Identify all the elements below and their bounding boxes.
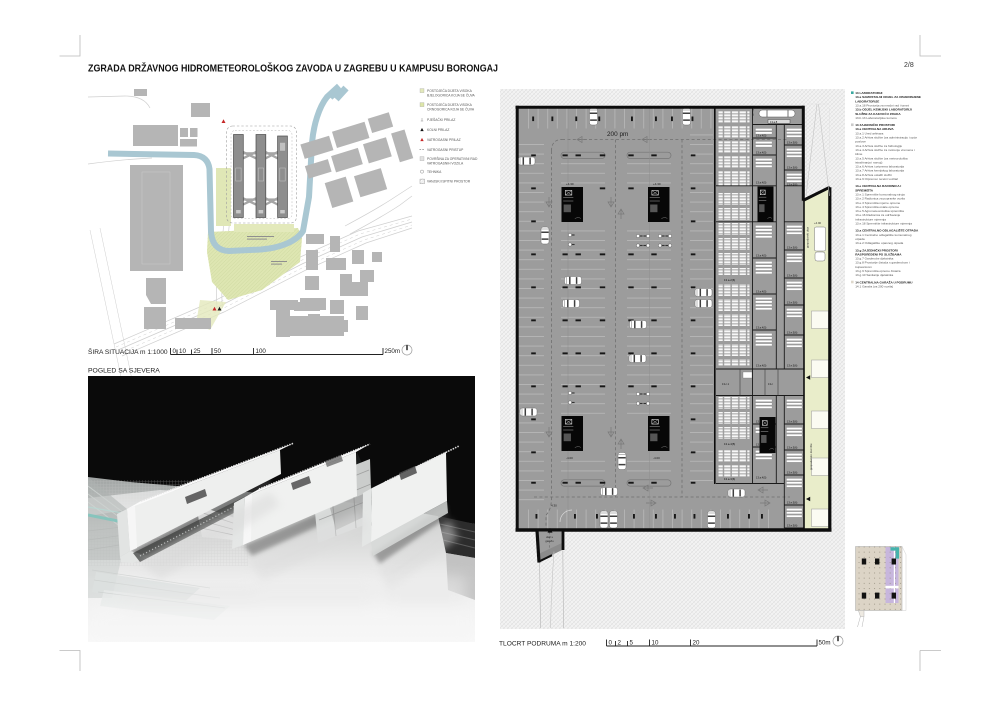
svg-text:13.a.4(5): 13.a.4(5)	[756, 364, 767, 368]
svg-text:14.1 Garaža (za 200 vozila): 14.1 Garaža (za 200 vozila)	[855, 284, 893, 288]
svg-text:VATROGASNI PRILAZ: VATROGASNI PRILAZ	[427, 138, 461, 142]
svg-text:13.e.5(6): 13.e.5(6)	[787, 364, 798, 368]
svg-text:13.a.4(5): 13.a.4(5)	[756, 476, 767, 480]
svg-text:13.g.10 Sanitarije djelatnika: 13.g.10 Sanitarije djelatnika	[855, 273, 893, 277]
svg-text:+4.30: +4.30	[653, 182, 661, 186]
svg-text:VATROGASNIH VOZILA: VATROGASNIH VOZILA	[427, 161, 464, 165]
svg-text:13.a.4(5): 13.a.4(5)	[756, 290, 767, 294]
svg-text:100: 100	[256, 348, 267, 355]
svg-text:POSTOJEĆA DIJETA VISOKA: POSTOJEĆA DIJETA VISOKA	[427, 88, 473, 93]
svg-text:13.e.5(6): 13.e.5(6)	[787, 420, 798, 424]
svg-text:10: 10	[652, 640, 659, 647]
svg-text:13.e.18 Spremište infrastruktu: 13.e.18 Spremište infrastrukture mjerenj…	[855, 222, 912, 226]
svg-text:13.e.5(6): 13.e.5(6)	[787, 166, 798, 170]
svg-text:13.e.5(6): 13.e.5(6)	[787, 301, 798, 305]
svg-text:gospodarsko dvorište: gospodarsko dvorište	[809, 443, 813, 470]
svg-text:13.a.9 Otprema i teretni vozil: 13.a.9 Otprema i teretni vozilari	[855, 177, 898, 181]
svg-text:13.c: 13.c	[768, 382, 774, 386]
svg-text:13.e.5(6): 13.e.5(6)	[787, 524, 798, 528]
svg-text:13.a.4(5): 13.a.4(5)	[724, 442, 735, 446]
svg-text:+4.90: +4.90	[814, 221, 822, 225]
svg-text:13.e.5(6): 13.e.5(6)	[787, 446, 798, 450]
svg-text:20: 20	[693, 640, 700, 647]
svg-text:250m: 250m	[385, 348, 400, 355]
svg-text:13.c.1: 13.c.1	[722, 382, 730, 386]
svg-text:10: 10	[179, 348, 186, 355]
svg-text:POVRŠINA ZA OPERATIVNI RAD: POVRŠINA ZA OPERATIVNI RAD	[427, 156, 478, 161]
svg-text:TEHNIKA: TEHNIKA	[427, 170, 442, 174]
svg-text:PJEŠAČKI PRILAZ: PJEŠAČKI PRILAZ	[427, 117, 455, 122]
svg-text:4.30: 4.30	[551, 504, 557, 508]
svg-text:13.a.4(5): 13.a.4(5)	[756, 134, 767, 138]
svg-text:5: 5	[630, 640, 634, 647]
svg-text:13.e.5(6): 13.e.5(6)	[787, 274, 798, 278]
svg-text:25: 25	[194, 348, 201, 355]
svg-text:13.e.5(6): 13.e.5(6)	[787, 501, 798, 505]
svg-text:ZGRADA DRŽAVNOG HIDROMETEOROLO: ZGRADA DRŽAVNOG HIDROMETEOROLOŠKOG ZAVOD…	[88, 62, 498, 75]
svg-text:-4.00: -4.00	[653, 456, 660, 460]
svg-text:13.b.13 Laboratorijske komore: 13.b.13 Laboratorijske komore	[855, 116, 897, 120]
svg-text:13.a.4(5): 13.a.4(5)	[756, 181, 767, 185]
svg-text:POGLED SA SJEVERA: POGLED SA SJEVERA	[88, 368, 160, 375]
svg-text:+4.30: +4.30	[566, 182, 574, 186]
svg-text:13.a.4(5): 13.a.4(5)	[756, 326, 767, 330]
svg-text:13.a.3(6): 13.a.3(6)	[724, 477, 735, 481]
svg-text:50m: 50m	[819, 640, 831, 647]
svg-text:-4.00: -4.00	[566, 456, 573, 460]
svg-text:0: 0	[609, 640, 613, 647]
svg-text:13.a.2 Odlagalište opasnog otp: 13.a.2 Odlagalište opasnog otpada	[855, 241, 903, 245]
svg-text:CRNOGORICA KOJA SE ČUVA: CRNOGORICA KOJA SE ČUVA	[427, 106, 475, 111]
svg-text:POSTOJEĆA DIJETA VISOKA: POSTOJEĆA DIJETA VISOKA	[427, 102, 473, 107]
svg-text:BJELOGORICA KOJA SE ČUVA: BJELOGORICA KOJA SE ČUVA	[427, 92, 476, 97]
svg-text:gospodarski ulaz: gospodarski ulaz	[806, 226, 810, 248]
svg-text:13.a.2(6): 13.a.2(6)	[724, 278, 735, 282]
svg-text:13.e.5(6): 13.e.5(6)	[787, 331, 798, 335]
svg-text:TLOCRT PODRUMA m 1:200: TLOCRT PODRUMA m 1:200	[499, 641, 586, 648]
svg-text:13.a.4(5): 13.a.4(5)	[756, 151, 767, 155]
svg-text:13.e.5(6): 13.e.5(6)	[787, 246, 798, 250]
svg-text:ulaz u: ulaz u	[546, 535, 554, 539]
svg-text:garažu: garažu	[545, 539, 554, 543]
svg-text:VANJSKI ISPITNI PROSTOR: VANJSKI ISPITNI PROSTOR	[427, 180, 471, 184]
svg-text:13.a.4 Arhiva službe za motren: 13.a.4 Arhiva službe za motrenje vremena…	[855, 148, 915, 152]
svg-text:2/8: 2/8	[904, 62, 914, 69]
svg-text:VATROGASNI PRISTUP: VATROGASNI PRISTUP	[427, 148, 464, 152]
svg-text:50: 50	[214, 348, 221, 355]
svg-text:13.e.5(6): 13.e.5(6)	[787, 471, 798, 475]
svg-text:13.e.5(6): 13.e.5(6)	[787, 141, 798, 145]
svg-text:0: 0	[173, 348, 177, 355]
svg-text:200 pm: 200 pm	[607, 131, 628, 138]
svg-text:KOLNI PRILAZ: KOLNI PRILAZ	[427, 128, 449, 132]
svg-text:13.a.4(5): 13.a.4(5)	[756, 254, 767, 258]
svg-text:13.a.8: 13.a.8	[770, 120, 778, 124]
svg-text:2: 2	[618, 640, 622, 647]
svg-text:ŠIRA SITUACIJA m 1:1000: ŠIRA SITUACIJA m 1:1000	[88, 347, 168, 356]
